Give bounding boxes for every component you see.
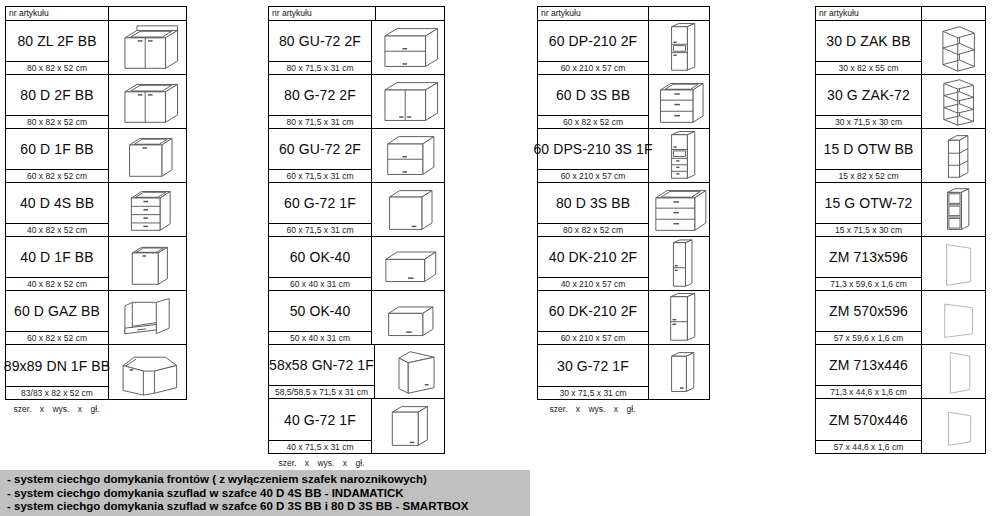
header-label: nr artykułu — [816, 7, 922, 20]
product-dimensions: 60 x 71,5 x 31 cm — [269, 169, 371, 182]
product-label-cell: ZM 570x59657 x 59,6 x 1,6 cm — [816, 291, 922, 344]
product-code: 60 D 3S BB — [538, 75, 648, 115]
product-label-cell: 80 D 2F BB80 x 82 x 52 cm — [6, 75, 109, 128]
product-label-cell: 40 D 1F BB40 x 82 x 52 cm — [6, 237, 109, 290]
product-code: 40 DK-210 2F — [538, 237, 648, 277]
wall-1door-slim-icon — [651, 347, 707, 397]
base-sink-2door-icon — [112, 23, 184, 73]
base-3drawer-icon — [651, 77, 707, 127]
product-dimensions: 40 x 210 x 57 cm — [538, 277, 648, 290]
panel-short-icon — [926, 293, 982, 343]
product-diagram-cell — [372, 291, 444, 344]
product-code: 60 OK-40 — [269, 237, 371, 277]
product-diagram-cell — [649, 129, 709, 182]
product-row: 40 G-72 1F40 x 71,5 x 31 cm — [269, 399, 444, 453]
wall-corner-icon — [375, 347, 447, 397]
panel-short-narrow-icon — [926, 401, 982, 451]
tall-2door-icon — [651, 293, 707, 343]
product-diagram-cell — [922, 129, 985, 182]
product-dimensions: 60 x 210 x 57 cm — [538, 169, 648, 182]
product-dimensions: 60 x 82 x 52 cm — [6, 169, 108, 182]
product-diagram-cell — [649, 291, 709, 344]
catalog-column-2: nr artykułu80 GU-72 2F80 x 71,5 x 31 cm8… — [268, 6, 445, 468]
product-dimensions: 80 x 71,5 x 31 cm — [269, 61, 371, 74]
product-code: 89x89 DN 1F BB — [6, 345, 108, 386]
product-diagram-cell — [922, 183, 985, 236]
product-row: 80 GU-72 2F80 x 71,5 x 31 cm — [269, 21, 444, 75]
product-code: 60 G-72 1F — [269, 183, 371, 223]
size-legend: szer. x wys. x gł. — [5, 404, 108, 414]
product-row: 58x58 GN-72 1F58,5/58,5 x 71,5 x 31 cm — [269, 345, 444, 399]
product-label-cell: 60 DK-210 2F60 x 210 x 57 cm — [538, 291, 649, 344]
table-header-row: nr artykułu — [269, 7, 444, 21]
product-label-cell: ZM 713x59671,3 x 59,6 x 1,6 cm — [816, 237, 922, 290]
product-label-cell: 30 D ZAK BB30 x 82 x 55 cm — [816, 21, 922, 74]
product-code: 30 G ZAK-72 — [816, 75, 921, 115]
product-diagram-cell — [372, 237, 444, 290]
size-legend: szer. x wys. x gł. — [268, 458, 375, 468]
product-diagram-cell — [922, 237, 985, 290]
wall-flip-small-icon — [372, 293, 444, 343]
product-code: 30 D ZAK BB — [816, 21, 921, 61]
base-1door-narrow-icon — [112, 239, 184, 289]
product-label-cell: 50 OK-4050 x 40 x 31 cm — [269, 291, 372, 344]
product-diagram-cell — [372, 399, 444, 453]
product-code: 80 D 3S BB — [538, 183, 648, 223]
product-dimensions: 80 x 82 x 52 cm — [538, 223, 648, 236]
product-diagram-cell — [649, 345, 709, 399]
wall-flip-icon — [372, 239, 444, 289]
product-row: 30 G-72 1F30 x 71,5 x 31 cm — [538, 345, 709, 399]
column-table: nr artykułu30 D ZAK BB30 x 82 x 55 cm30 … — [815, 6, 986, 454]
product-label-cell: 15 G OTW-7215 x 71,5 x 30 cm — [816, 183, 922, 236]
base-1door-icon — [112, 131, 184, 181]
product-row: 89x89 DN 1F BB83/83 x 82 x 52 cm — [6, 345, 186, 399]
product-row: 60 G-72 1F60 x 71,5 x 31 cm — [269, 183, 444, 237]
product-row: ZM 713x59671,3 x 59,6 x 1,6 cm — [816, 237, 985, 291]
product-diagram-cell — [109, 345, 186, 399]
product-dimensions: 40 x 82 x 52 cm — [6, 223, 108, 236]
base-corner-icon — [112, 347, 184, 397]
product-diagram-cell — [109, 291, 186, 344]
product-dimensions: 60 x 82 x 52 cm — [6, 331, 108, 344]
product-diagram-cell — [649, 21, 709, 74]
product-code: ZM 713x446 — [816, 345, 921, 385]
product-dimensions: 60 x 82 x 52 cm — [538, 115, 648, 128]
product-row: 40 D 1F BB40 x 82 x 52 cm — [6, 237, 186, 291]
base-4drawer-icon — [112, 185, 184, 235]
product-row: 60 D 1F BB60 x 82 x 52 cm — [6, 129, 186, 183]
product-label-cell: 80 GU-72 2F80 x 71,5 x 31 cm — [269, 21, 372, 74]
product-dimensions: 15 x 82 x 52 cm — [816, 169, 921, 182]
product-code: 40 D 4S BB — [6, 183, 108, 223]
product-label-cell: 60 GU-72 2F60 x 71,5 x 31 cm — [269, 129, 372, 182]
product-dimensions: 30 x 71,5 x 31 cm — [538, 386, 648, 399]
product-diagram-cell — [109, 129, 186, 182]
product-code: 60 DPS-210 3S 1F — [538, 129, 648, 169]
product-row: 30 D ZAK BB30 x 82 x 55 cm — [816, 21, 985, 75]
open-shelf-base-icon — [926, 131, 982, 181]
product-label-cell: 40 D 4S BB40 x 82 x 52 cm — [6, 183, 109, 236]
product-row: 80 G-72 2F80 x 71,5 x 31 cm — [269, 75, 444, 129]
product-dimensions: 60 x 210 x 57 cm — [538, 331, 648, 344]
product-diagram-cell — [649, 183, 709, 236]
product-label-cell: 89x89 DN 1F BB83/83 x 82 x 52 cm — [6, 345, 109, 399]
base-3drawer-wide-icon — [651, 185, 707, 235]
product-code: 40 G-72 1F — [269, 399, 371, 440]
catalog-sheet: - system ciechgo domykania frontów ( z w… — [0, 0, 1000, 516]
wall-2flip-icon — [372, 23, 444, 73]
product-code: 60 DP-210 2F — [538, 21, 648, 61]
product-dimensions: 57 x 44,6 x 1,6 cm — [816, 440, 921, 453]
legend-line-smartbox: - system ciechgo domykania szuflad w sza… — [7, 500, 523, 514]
product-row: 60 DK-210 2F60 x 210 x 57 cm — [538, 291, 709, 345]
product-label-cell: 60 DPS-210 3S 1F60 x 210 x 57 cm — [538, 129, 649, 182]
product-label-cell: 80 G-72 2F80 x 71,5 x 31 cm — [269, 75, 372, 128]
product-diagram-cell — [372, 21, 444, 74]
product-row: ZM 713x44671,3 x 44,6 x 1,6 cm — [816, 345, 985, 399]
product-label-cell: 30 G ZAK-7230 x 71,5 x 30 cm — [816, 75, 922, 128]
tall-niche-drawers-icon — [651, 131, 707, 181]
product-label-cell: ZM 570x44657 x 44,6 x 1,6 cm — [816, 399, 922, 453]
product-label-cell: 40 DK-210 2F40 x 210 x 57 cm — [538, 237, 649, 290]
product-label-cell: 60 G-72 1F60 x 71,5 x 31 cm — [269, 183, 372, 236]
catalog-column-1: nr artykułu80 ZL 2F BB80 x 82 x 52 cm80 … — [5, 6, 187, 414]
corner-shelf-wall-icon — [926, 77, 982, 127]
product-label-cell: 15 D OTW BB15 x 82 x 52 cm — [816, 129, 922, 182]
product-dimensions: 71,3 x 44,6 x 1,6 cm — [816, 385, 921, 398]
wall-2door-icon — [372, 77, 444, 127]
product-dimensions: 15 x 71,5 x 30 cm — [816, 223, 921, 236]
column-table: nr artykułu80 ZL 2F BB80 x 82 x 52 cm80 … — [5, 6, 187, 400]
product-row: 60 D GAZ BB60 x 82 x 52 cm — [6, 291, 186, 345]
product-diagram-cell — [109, 21, 186, 74]
product-label-cell: 40 G-72 1F40 x 71,5 x 31 cm — [269, 399, 372, 453]
product-label-cell: ZM 713x44671,3 x 44,6 x 1,6 cm — [816, 345, 922, 398]
product-label-cell: 60 D GAZ BB60 x 82 x 52 cm — [6, 291, 109, 344]
product-diagram-cell — [109, 237, 186, 290]
panel-tall-narrow-icon — [926, 347, 982, 397]
product-dimensions: 40 x 71,5 x 31 cm — [269, 440, 371, 453]
catalog-column-3: nr artykułu60 DP-210 2F60 x 210 x 57 cm6… — [537, 6, 710, 414]
header-label: nr artykułu — [538, 7, 649, 20]
product-row: 80 ZL 2F BB80 x 82 x 52 cm — [6, 21, 186, 75]
product-dimensions: 83/83 x 82 x 52 cm — [6, 386, 108, 399]
product-dimensions: 80 x 82 x 52 cm — [6, 61, 108, 74]
product-diagram-cell — [109, 183, 186, 236]
product-code: 30 G-72 1F — [538, 345, 648, 386]
product-row: 30 G ZAK-7230 x 71,5 x 30 cm — [816, 75, 985, 129]
tall-2door-niche-icon — [651, 23, 707, 73]
product-label-cell: 58x58 GN-72 1F58,5/58,5 x 71,5 x 31 cm — [269, 345, 375, 398]
base-oven-icon — [112, 293, 184, 343]
product-code: ZM 570x446 — [816, 399, 921, 440]
product-diagram-cell — [372, 129, 444, 182]
product-diagram-cell — [922, 399, 985, 453]
product-row: ZM 570x59657 x 59,6 x 1,6 cm — [816, 291, 985, 345]
product-diagram-cell — [109, 75, 186, 128]
wall-1door-narrow-icon — [372, 401, 444, 451]
product-dimensions: 58,5/58,5 x 71,5 x 31 cm — [269, 385, 374, 398]
product-code: ZM 713x596 — [816, 237, 921, 277]
header-label: nr artykułu — [269, 7, 376, 20]
table-header-row: nr artykułu — [6, 7, 186, 21]
product-diagram-cell — [922, 75, 985, 128]
closing-system-legend: - system ciechgo domykania frontów ( z w… — [0, 470, 530, 516]
wall-2flip-small-icon — [372, 131, 444, 181]
product-code: 60 D 1F BB — [6, 129, 108, 169]
product-dimensions: 80 x 71,5 x 31 cm — [269, 115, 371, 128]
product-row: ZM 570x44657 x 44,6 x 1,6 cm — [816, 399, 985, 453]
product-diagram-cell — [649, 75, 709, 128]
product-row: 50 OK-4050 x 40 x 31 cm — [269, 291, 444, 345]
product-row: 15 D OTW BB15 x 82 x 52 cm — [816, 129, 985, 183]
product-dimensions: 40 x 82 x 52 cm — [6, 277, 108, 290]
product-row: 40 DK-210 2F40 x 210 x 57 cm — [538, 237, 709, 291]
size-legend: szer. x wys. x gł. — [537, 404, 648, 414]
column-table: nr artykułu60 DP-210 2F60 x 210 x 57 cm6… — [537, 6, 710, 400]
product-row: 80 D 3S BB80 x 82 x 52 cm — [538, 183, 709, 237]
product-row: 40 D 4S BB40 x 82 x 52 cm — [6, 183, 186, 237]
product-diagram-cell — [922, 345, 985, 398]
product-dimensions: 60 x 210 x 57 cm — [538, 61, 648, 74]
product-dimensions: 60 x 71,5 x 31 cm — [269, 223, 371, 236]
table-header-row: nr artykułu — [538, 7, 709, 21]
product-dimensions: 71,3 x 59,6 x 1,6 cm — [816, 277, 921, 290]
product-code: 80 GU-72 2F — [269, 21, 371, 61]
product-code: 15 G OTW-72 — [816, 183, 921, 223]
product-dimensions: 30 x 82 x 55 cm — [816, 61, 921, 74]
product-dimensions: 80 x 82 x 52 cm — [6, 115, 108, 128]
product-row: 15 G OTW-7215 x 71,5 x 30 cm — [816, 183, 985, 237]
product-diagram-cell — [922, 21, 985, 74]
product-code: 40 D 1F BB — [6, 237, 108, 277]
product-label-cell: 60 DP-210 2F60 x 210 x 57 cm — [538, 21, 649, 74]
panel-tall-icon — [926, 239, 982, 289]
open-shelf-wall-icon — [926, 185, 982, 235]
tall-2door-narrow-icon — [651, 239, 707, 289]
product-row: 60 DPS-210 3S 1F60 x 210 x 57 cm — [538, 129, 709, 183]
product-code: 60 DK-210 2F — [538, 291, 648, 331]
product-diagram-cell — [375, 345, 447, 398]
product-row: 60 GU-72 2F60 x 71,5 x 31 cm — [269, 129, 444, 183]
product-diagram-cell — [922, 291, 985, 344]
product-dimensions: 57 x 59,6 x 1,6 cm — [816, 331, 921, 344]
product-label-cell: 80 ZL 2F BB80 x 82 x 52 cm — [6, 21, 109, 74]
product-label-cell: 60 D 3S BB60 x 82 x 52 cm — [538, 75, 649, 128]
product-row: 80 D 2F BB80 x 82 x 52 cm — [6, 75, 186, 129]
header-label: nr artykułu — [6, 7, 109, 20]
product-code: 80 ZL 2F BB — [6, 21, 108, 61]
product-label-cell: 60 OK-4060 x 40 x 31 cm — [269, 237, 372, 290]
product-code: 80 D 2F BB — [6, 75, 108, 115]
product-code: 60 GU-72 2F — [269, 129, 371, 169]
product-code: 80 G-72 2F — [269, 75, 371, 115]
column-table: nr artykułu80 GU-72 2F80 x 71,5 x 31 cm8… — [268, 6, 445, 454]
catalog-column-4: nr artykułu30 D ZAK BB30 x 82 x 55 cm30 … — [815, 6, 986, 454]
product-diagram-cell — [649, 237, 709, 290]
base-2door-icon — [112, 77, 184, 127]
product-diagram-cell — [372, 183, 444, 236]
product-label-cell: 60 D 1F BB60 x 82 x 52 cm — [6, 129, 109, 182]
wall-1door-icon — [372, 185, 444, 235]
product-code: ZM 570x596 — [816, 291, 921, 331]
product-dimensions: 30 x 71,5 x 30 cm — [816, 115, 921, 128]
product-diagram-cell — [372, 75, 444, 128]
product-row: 60 OK-4060 x 40 x 31 cm — [269, 237, 444, 291]
legend-line-indamatick: - system ciechgo domykania szuflad w sza… — [7, 487, 523, 501]
product-row: 60 DP-210 2F60 x 210 x 57 cm — [538, 21, 709, 75]
corner-shelf-base-icon — [926, 23, 982, 73]
table-header-row: nr artykułu — [816, 7, 985, 21]
product-dimensions: 50 x 40 x 31 cm — [269, 331, 371, 344]
product-label-cell: 80 D 3S BB80 x 82 x 52 cm — [538, 183, 649, 236]
product-code: 15 D OTW BB — [816, 129, 921, 169]
product-label-cell: 30 G-72 1F30 x 71,5 x 31 cm — [538, 345, 649, 399]
product-row: 60 D 3S BB60 x 82 x 52 cm — [538, 75, 709, 129]
legend-line-fronts: - system ciechgo domykania frontów ( z w… — [7, 473, 523, 487]
product-code: 60 D GAZ BB — [6, 291, 108, 331]
product-code: 50 OK-40 — [269, 291, 371, 331]
product-dimensions: 60 x 40 x 31 cm — [269, 277, 371, 290]
product-code: 58x58 GN-72 1F — [269, 345, 374, 385]
